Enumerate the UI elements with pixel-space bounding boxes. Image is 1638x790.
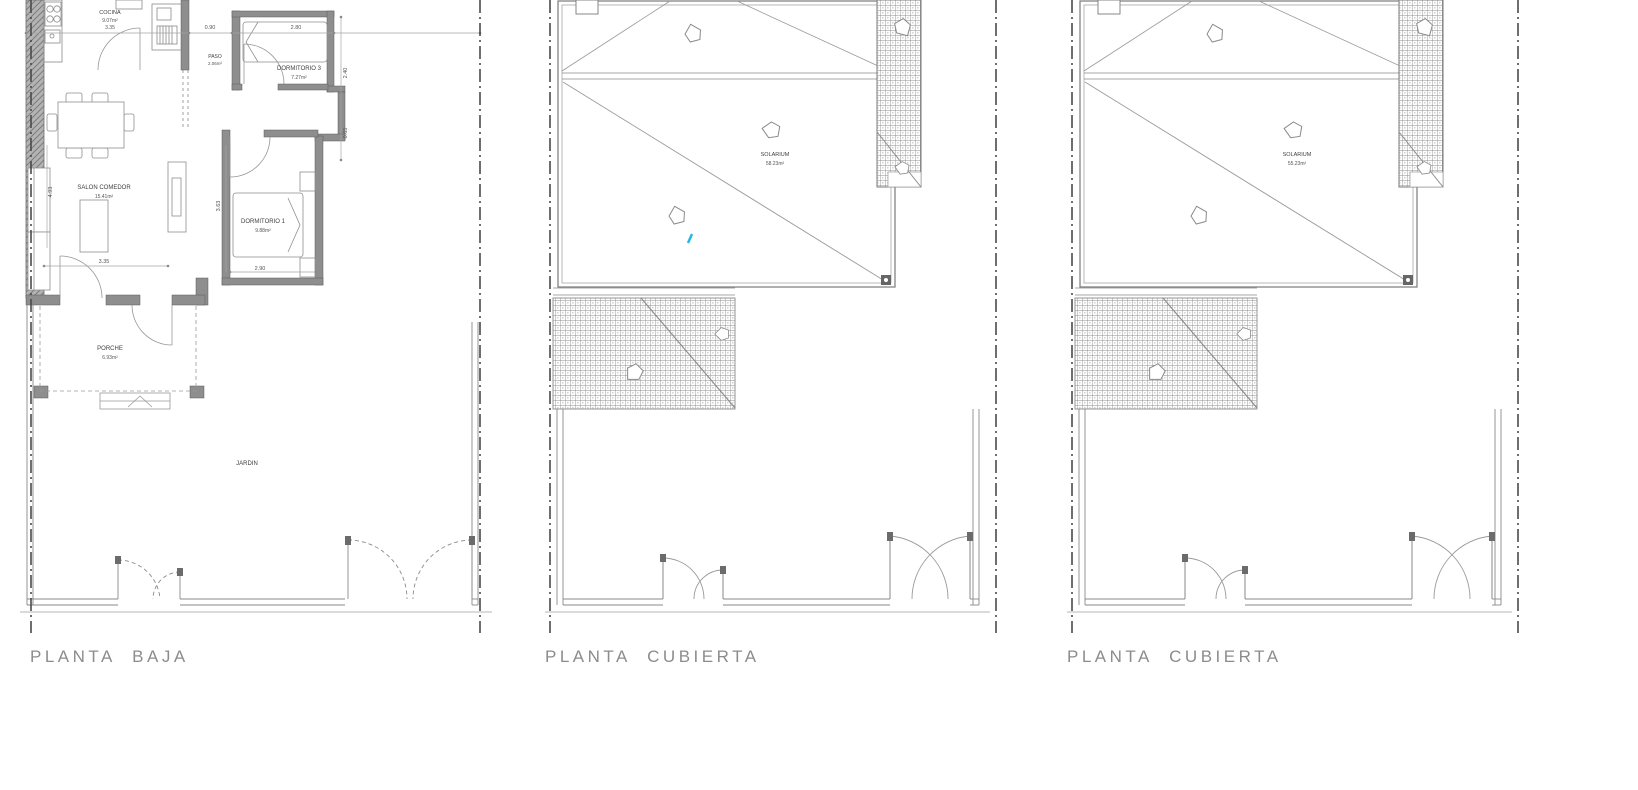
- label-paso: PASO: [208, 54, 222, 60]
- coffee-table: [80, 200, 108, 252]
- label-salon-area: 15.41m²: [95, 194, 114, 200]
- label-dormitorio1: DORMITORIO 1: [241, 219, 286, 225]
- dim-dorm3-width: 2.80: [291, 25, 302, 31]
- label-porche-area: 6.93m²: [102, 355, 118, 361]
- label-solarium-right-area: 55.23m²: [1288, 161, 1307, 167]
- label-jardin: JARDIN: [236, 461, 258, 467]
- nightstand: [300, 258, 315, 277]
- chair: [66, 93, 82, 103]
- chair: [124, 114, 134, 131]
- label-solarium-center-area: 58.23m²: [766, 161, 785, 167]
- dim-salon-depth: 4.93: [48, 187, 54, 198]
- label-porche: PORCHE: [97, 346, 123, 352]
- nightstand: [300, 172, 315, 191]
- dim-wall-jog: 0.65: [343, 128, 349, 139]
- label-cocina: COCINA: [99, 10, 121, 16]
- title-planta-cubierta-center: PLANTA CUBIERTA: [545, 647, 760, 666]
- plan-sheet: COCINA 9.07m² 3.35 PASO 2.06m² DORMITORI…: [0, 0, 1638, 790]
- chair: [92, 148, 108, 158]
- label-cocina-area: 9.07m²: [102, 18, 118, 24]
- bed-dormitorio3: [243, 22, 327, 62]
- title-planta-baja: PLANTA BAJA: [30, 647, 189, 666]
- dining-table: [58, 102, 124, 148]
- bed-dormitorio1: [233, 193, 303, 257]
- chair: [66, 148, 82, 158]
- label-dormitorio3-area: 7.27m²: [291, 75, 307, 81]
- dim-dorm3-depth: 2.40: [343, 68, 349, 79]
- label-dormitorio1-area: 9.88m²: [255, 228, 271, 234]
- label-salon-comedor: SALON COMEDOR: [77, 185, 131, 191]
- label-cocina-dim: 3.35: [105, 25, 115, 31]
- chair: [47, 114, 57, 131]
- label-solarium-right: SOLARIUM: [1283, 152, 1312, 158]
- label-paso-area: 2.06m²: [208, 61, 223, 66]
- title-planta-cubierta-right: PLANTA CUBIERTA: [1067, 647, 1282, 666]
- dim-dorm1-width: 2.90: [255, 266, 266, 272]
- dim-dorm1-depth: 3.63: [216, 201, 222, 212]
- chair: [92, 93, 108, 103]
- label-dormitorio3: DORMITORIO 3: [277, 66, 322, 72]
- floor-plan-drawing: COCINA 9.07m² 3.35 PASO 2.06m² DORMITORI…: [0, 0, 1638, 790]
- dim-salon-width: 3.35: [99, 259, 110, 265]
- label-solarium-center: SOLARIUM: [761, 152, 790, 158]
- dim-paso-width: 0.90: [205, 25, 216, 31]
